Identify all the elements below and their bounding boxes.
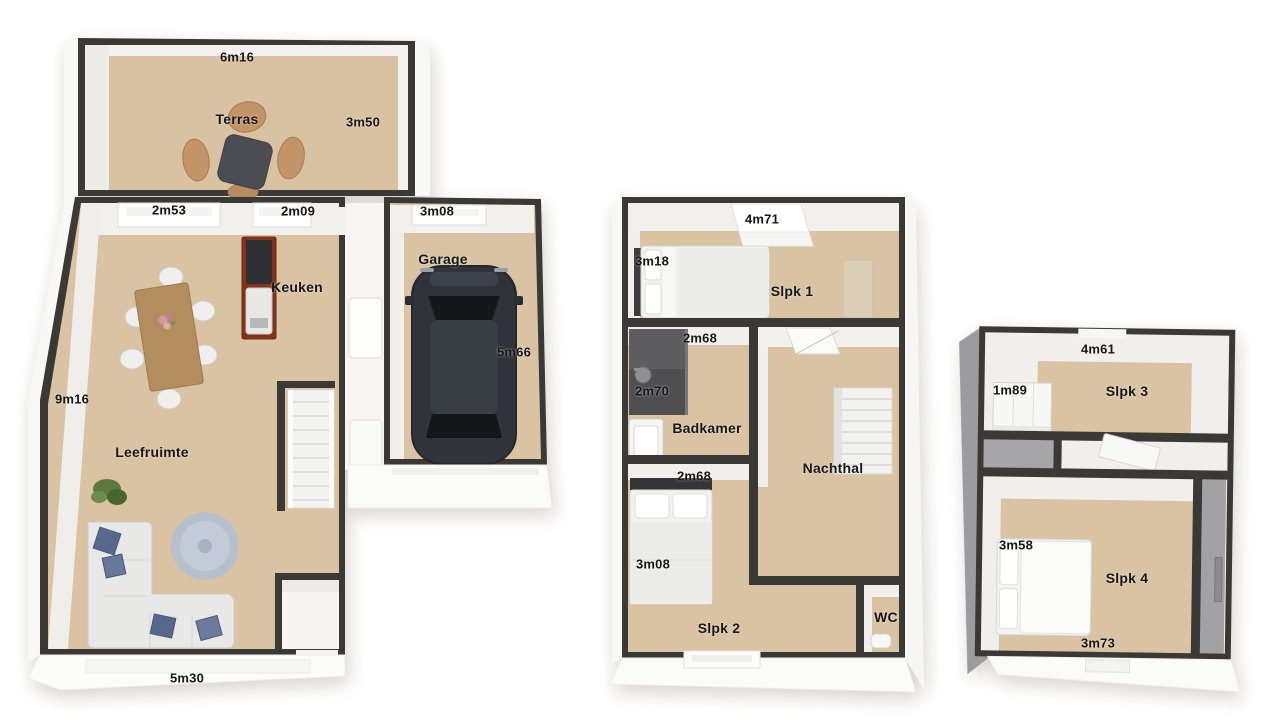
bed4-icon <box>996 539 1091 636</box>
bed1-icon <box>634 246 769 318</box>
upper-stairs-icon <box>834 388 892 474</box>
rug-icon <box>171 512 239 580</box>
wardrobe-icon <box>993 382 1052 431</box>
first-floor-plan <box>610 197 924 692</box>
nachthal-door-icon <box>786 328 840 354</box>
car-icon <box>405 266 523 464</box>
skylight-icon <box>731 204 813 246</box>
slpk2-window-icon <box>684 651 760 668</box>
hallway <box>345 203 384 506</box>
terrace-room <box>64 38 430 204</box>
floor-plan-canvas <box>0 0 1280 720</box>
dresser-icon <box>843 260 873 318</box>
entry-hall <box>275 573 345 656</box>
radiator-icon <box>1215 558 1223 602</box>
slpk3-window-icon <box>1078 329 1126 339</box>
living-window-right-icon <box>253 203 311 227</box>
ground-floor-plan <box>28 38 552 690</box>
bed2-icon <box>630 478 712 604</box>
floor-plan-page: 6m16 Terras 3m50 2m53 2m09 3m08 Garage K… <box>0 0 1280 720</box>
toilet-icon <box>871 634 891 648</box>
second-floor-plan <box>954 326 1245 692</box>
garage-window-icon <box>412 205 486 225</box>
living-room <box>28 197 345 690</box>
step-icon <box>1086 660 1130 673</box>
front-steps-icon <box>86 660 310 673</box>
hall-cabinet-icon <box>349 298 382 358</box>
living-window-left-icon <box>118 203 220 227</box>
kitchen-counter-icon <box>242 237 276 339</box>
shower-icon <box>629 329 688 415</box>
garage-door-icon <box>392 468 539 475</box>
